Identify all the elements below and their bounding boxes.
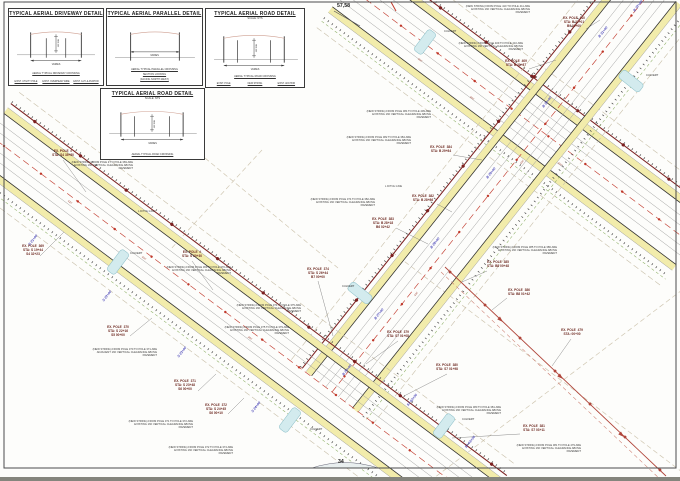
clearance-dimension: 16F MIN bbox=[58, 39, 60, 47]
varies-dimension: VARIES bbox=[9, 63, 103, 66]
clearance-dimension: 16F MIN bbox=[256, 44, 258, 52]
detail-title: TYPICAL AERIAL PARALLEL DETAIL bbox=[107, 11, 202, 17]
detail-box-driveway: TYPICAL AERIAL DRIVEWAY DETAIL VARIES 16… bbox=[8, 8, 104, 86]
detail-caption: AERIAL TYPICAL PARALLEL CROSSING bbox=[107, 68, 202, 71]
clearance-dimension: 16F MIN bbox=[154, 120, 156, 128]
varies-dimension: VARIES bbox=[101, 142, 204, 145]
detail-box-road-2: TYPICAL AERIAL ROAD DETAIL SCALE: NTS VA… bbox=[100, 88, 205, 160]
detail-caption: AERIAL TYPICAL DRIVEWAY CROSSING bbox=[9, 72, 103, 75]
detail-footnote: EXIST. GUY & ANCHOR bbox=[72, 81, 100, 83]
detail-caption: AERIAL TYPICAL ROAD CROSSING bbox=[101, 153, 204, 156]
matchline-sheet-ref-top: 57,58 bbox=[337, 3, 350, 9]
detail-footnote: NEW STRING bbox=[240, 83, 269, 85]
detail-caption: AERIAL TYPICAL ROAD CROSSING bbox=[206, 75, 304, 78]
detail-caption: (FACING NORTH-WEST) bbox=[107, 78, 202, 81]
detail-footnote: EXIST. OVERHEAD WIRE bbox=[42, 81, 70, 83]
detail-footnote: EXIST. ANCHOR bbox=[272, 83, 301, 85]
detail-footnotes: EXIST. POLENEW STRINGEXIST. ANCHOR bbox=[209, 83, 301, 85]
detail-box-road-1: TYPICAL AERIAL ROAD DETAIL SCALE: NTS VA… bbox=[205, 8, 305, 88]
varies-dimension: VARIES bbox=[206, 68, 304, 71]
plan-sheet: EX. POLE #STA: S4 35+80EX. POLE 369STA: … bbox=[0, 0, 680, 481]
detail-title: TYPICAL AERIAL DRIVEWAY DETAIL bbox=[9, 11, 103, 17]
detail-caption: SECTION LOOKING bbox=[107, 73, 202, 76]
matchline-sheet-ref-bottom: 34 bbox=[338, 459, 344, 465]
detail-footnote: EXIST. POLE bbox=[209, 83, 238, 85]
detail-footnote: EXIST. UTILITY POLE bbox=[12, 81, 40, 83]
detail-scale: SCALE: NTS bbox=[206, 17, 304, 20]
sheet-edge bbox=[0, 477, 680, 481]
detail-box-parallel: TYPICAL AERIAL PARALLEL DETAIL VARIES AE… bbox=[106, 8, 203, 86]
detail-footnotes: EXIST. UTILITY POLEEXIST. OVERHEAD WIREE… bbox=[12, 81, 100, 83]
detail-scale: SCALE: NTS bbox=[101, 97, 204, 100]
varies-dimension: VARIES bbox=[107, 54, 202, 57]
